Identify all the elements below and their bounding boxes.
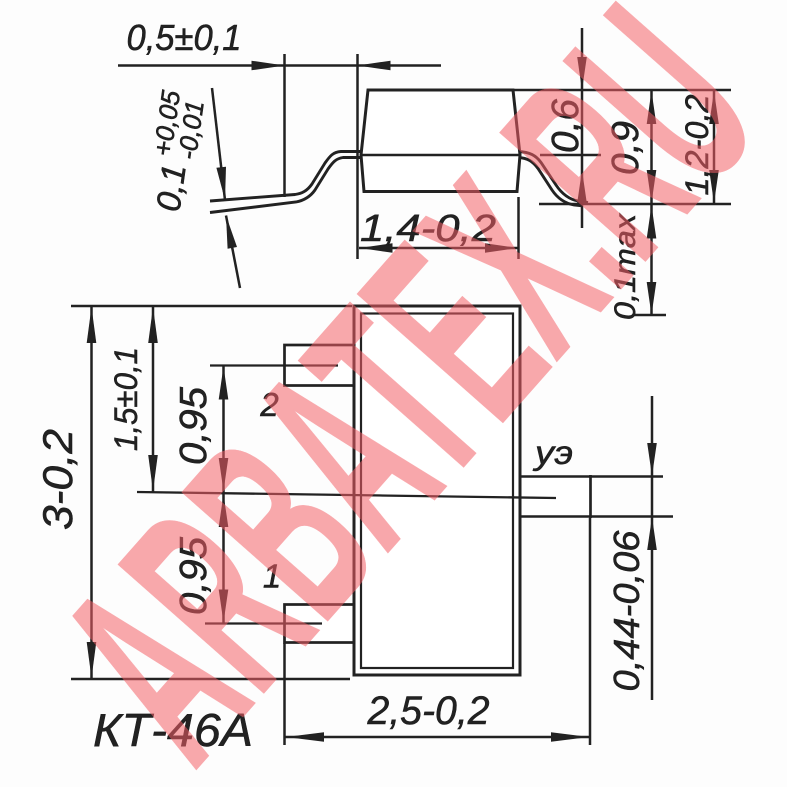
svg-text:2,5-0,2: 2,5-0,2 [367,689,490,733]
svg-text:1,5±0,1: 1,5±0,1 [108,347,144,451]
svg-text:0,5±0,1: 0,5±0,1 [127,17,242,58]
svg-text:0,44-0,06: 0,44-0,06 [606,529,647,691]
svg-text:3-0,2: 3-0,2 [34,429,81,530]
svg-text:0,1: 0,1 [150,162,194,214]
